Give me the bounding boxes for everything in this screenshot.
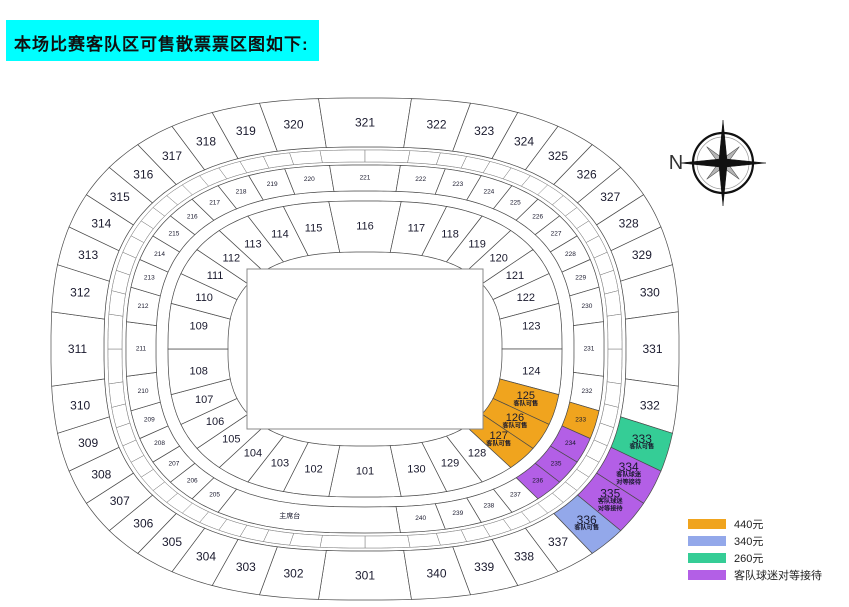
suite-cell: [108, 349, 123, 384]
section-230-label: 230: [581, 303, 592, 310]
section-206-label: 206: [187, 477, 198, 484]
section-320-label: 320: [283, 118, 303, 132]
section-122-label: 122: [517, 292, 535, 304]
suite-cell: [108, 314, 123, 349]
page: 本场比赛客队区可售散票票区图如下: 3013023033043053063073…: [0, 0, 849, 607]
suite-cell: [365, 150, 410, 163]
section-107-label: 107: [195, 394, 213, 406]
section-319-label: 319: [236, 124, 256, 138]
section-337-label: 337: [548, 535, 568, 549]
section-113-label: 113: [244, 239, 262, 251]
section-102-label: 102: [304, 463, 322, 475]
section-311-label: 311: [68, 342, 87, 356]
section-332-label: 332: [640, 398, 660, 412]
section-208-label: 208: [154, 440, 165, 447]
section-227-label: 227: [551, 231, 562, 238]
section-114-label: 114: [271, 229, 289, 241]
legend-item: 340元: [688, 532, 822, 549]
section-110-label: 110: [195, 292, 213, 304]
legend-swatch: [688, 519, 726, 529]
section-333-label: 333客队可售: [629, 432, 655, 450]
section-231-label: 231: [584, 346, 595, 353]
suite-cell: [290, 533, 323, 547]
section-239-label: 239: [452, 510, 463, 517]
section-218-label: 218: [236, 189, 247, 196]
suite-cell: [112, 404, 130, 428]
section-314-label: 314: [91, 217, 111, 231]
suite-cell: [607, 349, 622, 384]
section-101-label: 101: [356, 466, 374, 478]
suite-cell: [365, 535, 410, 548]
section-238-label: 238: [483, 502, 494, 509]
section-118-label: 118: [441, 229, 459, 241]
section-207-label: 207: [168, 460, 179, 467]
suite-cell: [607, 314, 622, 349]
suite-cell: [605, 291, 622, 317]
compass-star-cardinal: [680, 120, 766, 206]
compass-north-label: N: [669, 152, 683, 174]
suite-cell: [436, 530, 466, 545]
section-103-label: 103: [271, 457, 289, 469]
suite-cell: [263, 153, 293, 168]
section-125-label: 125客队可售: [512, 390, 538, 407]
section-340-label: 340: [426, 566, 446, 580]
section-209-label: 209: [144, 416, 155, 423]
section-309-label: 309: [78, 436, 98, 450]
section-328-label: 328: [619, 217, 639, 231]
section-317-label: 317: [162, 149, 182, 163]
section-210-label: 210: [138, 388, 149, 395]
legend-swatch: [688, 570, 726, 580]
section-240-label: 240: [415, 515, 426, 522]
section-126-label: 126客队可售: [502, 412, 528, 429]
section-307-label: 307: [110, 494, 130, 508]
section-339-label: 339: [474, 560, 494, 574]
section-336-label: 336客队可售: [573, 513, 599, 531]
suite-cell: [109, 382, 126, 408]
section-322-label: 322: [426, 118, 446, 132]
section-222-label: 222: [415, 176, 426, 183]
section-323-label: 323: [474, 124, 494, 138]
section-213-label: 213: [144, 275, 155, 282]
section-130-label: 130: [407, 463, 425, 475]
section-301-label: 301: [355, 569, 375, 583]
suite-cell: [408, 533, 441, 547]
suite-cell: [109, 291, 126, 317]
section-329-label: 329: [632, 248, 652, 262]
section-229-label: 229: [575, 275, 586, 282]
section-324-label: 324: [514, 134, 534, 148]
legend-label: 440元: [734, 516, 763, 532]
section-211-label: 211: [136, 346, 147, 353]
price-legend: 440元340元260元客队球迷对等接待: [688, 515, 822, 583]
section-119-label: 119: [468, 239, 486, 251]
section-106-label: 106: [206, 416, 224, 428]
section-104-label: 104: [244, 447, 262, 459]
pitch: [247, 269, 483, 429]
section-233-label: 233: [575, 416, 586, 423]
section-306-label: 306: [133, 517, 153, 531]
suite-cell: [605, 382, 622, 408]
section-108-label: 108: [190, 366, 208, 378]
section-223-label: 223: [452, 181, 463, 188]
section-212-label: 212: [138, 303, 149, 310]
section-109-label: 109: [190, 320, 208, 332]
section-121-label: 121: [506, 270, 524, 282]
section-334-label: 334客队球迷对等接待: [615, 460, 642, 486]
suite-cell: [320, 150, 365, 163]
section-237-label: 237: [510, 491, 521, 498]
section-331-label: 331: [642, 342, 662, 356]
section-330-label: 330: [640, 286, 660, 300]
section-123-label: 123: [522, 320, 540, 332]
legend-label: 260元: [734, 550, 763, 566]
legend-item: 440元: [688, 515, 822, 532]
section-120-label: 120: [489, 252, 507, 264]
section-313-label: 313: [78, 248, 98, 262]
section-228-label: 228: [565, 251, 576, 258]
section-224-label: 224: [483, 189, 494, 196]
section-116-label: 116: [356, 221, 374, 233]
section-205-label: 205: [209, 491, 220, 498]
legend-swatch: [688, 536, 726, 546]
section-220-label: 220: [304, 176, 315, 183]
section-124-label: 124: [522, 366, 540, 378]
section-318-label: 318: [196, 134, 216, 148]
section-112-label: 112: [223, 252, 241, 264]
section-111-label: 111: [207, 270, 224, 282]
section-128-label: 128: [468, 447, 486, 459]
section-303-label: 303: [236, 560, 256, 574]
section-236-label: 236: [532, 477, 543, 484]
legend-label: 客队球迷对等接待: [734, 567, 822, 583]
section-117-label: 117: [408, 223, 426, 235]
legend-item: 260元: [688, 549, 822, 566]
section-234-label: 234: [565, 440, 576, 447]
section-308-label: 308: [91, 467, 111, 481]
legend-label: 340元: [734, 533, 763, 549]
section-338-label: 338: [514, 550, 534, 564]
section-302-label: 302: [283, 566, 303, 580]
section-304-label: 304: [196, 550, 216, 564]
section-105-label: 105: [222, 434, 240, 446]
section-115-label: 115: [305, 223, 323, 235]
section-327-label: 327: [600, 190, 620, 204]
section-221-label: 221: [360, 175, 371, 182]
section-235-label: 235: [551, 460, 562, 467]
section-226-label: 226: [532, 214, 543, 221]
section-214-label: 214: [154, 251, 165, 258]
section-217-label: 217: [209, 200, 220, 207]
section-326-label: 326: [577, 167, 597, 181]
section-335-label: 335客队球迷对等接待: [597, 487, 624, 513]
suite-cell: [600, 270, 618, 294]
suite-cell: [408, 151, 441, 165]
compass-icon: N: [669, 120, 766, 206]
section-216-label: 216: [187, 214, 198, 221]
legend-swatch: [688, 553, 726, 563]
section-215-label: 215: [168, 231, 179, 238]
section-219-label: 219: [267, 181, 278, 188]
legend-item: 客队球迷对等接待: [688, 566, 822, 583]
section-321-label: 321: [355, 116, 375, 130]
section-225-label: 225: [510, 200, 521, 207]
podium-label: 主席台: [279, 511, 300, 520]
section-325-label: 325: [548, 149, 568, 163]
section-315-label: 315: [110, 190, 130, 204]
section-129-label: 129: [441, 457, 459, 469]
section-316-label: 316: [133, 167, 153, 181]
section-305-label: 305: [162, 535, 182, 549]
section-127-label: 127客队可售: [485, 430, 511, 447]
section-232-label: 232: [581, 388, 592, 395]
section-310-label: 310: [70, 398, 90, 412]
section-312-label: 312: [70, 286, 90, 300]
suite-cell: [320, 535, 365, 548]
suite-cell: [290, 151, 323, 165]
